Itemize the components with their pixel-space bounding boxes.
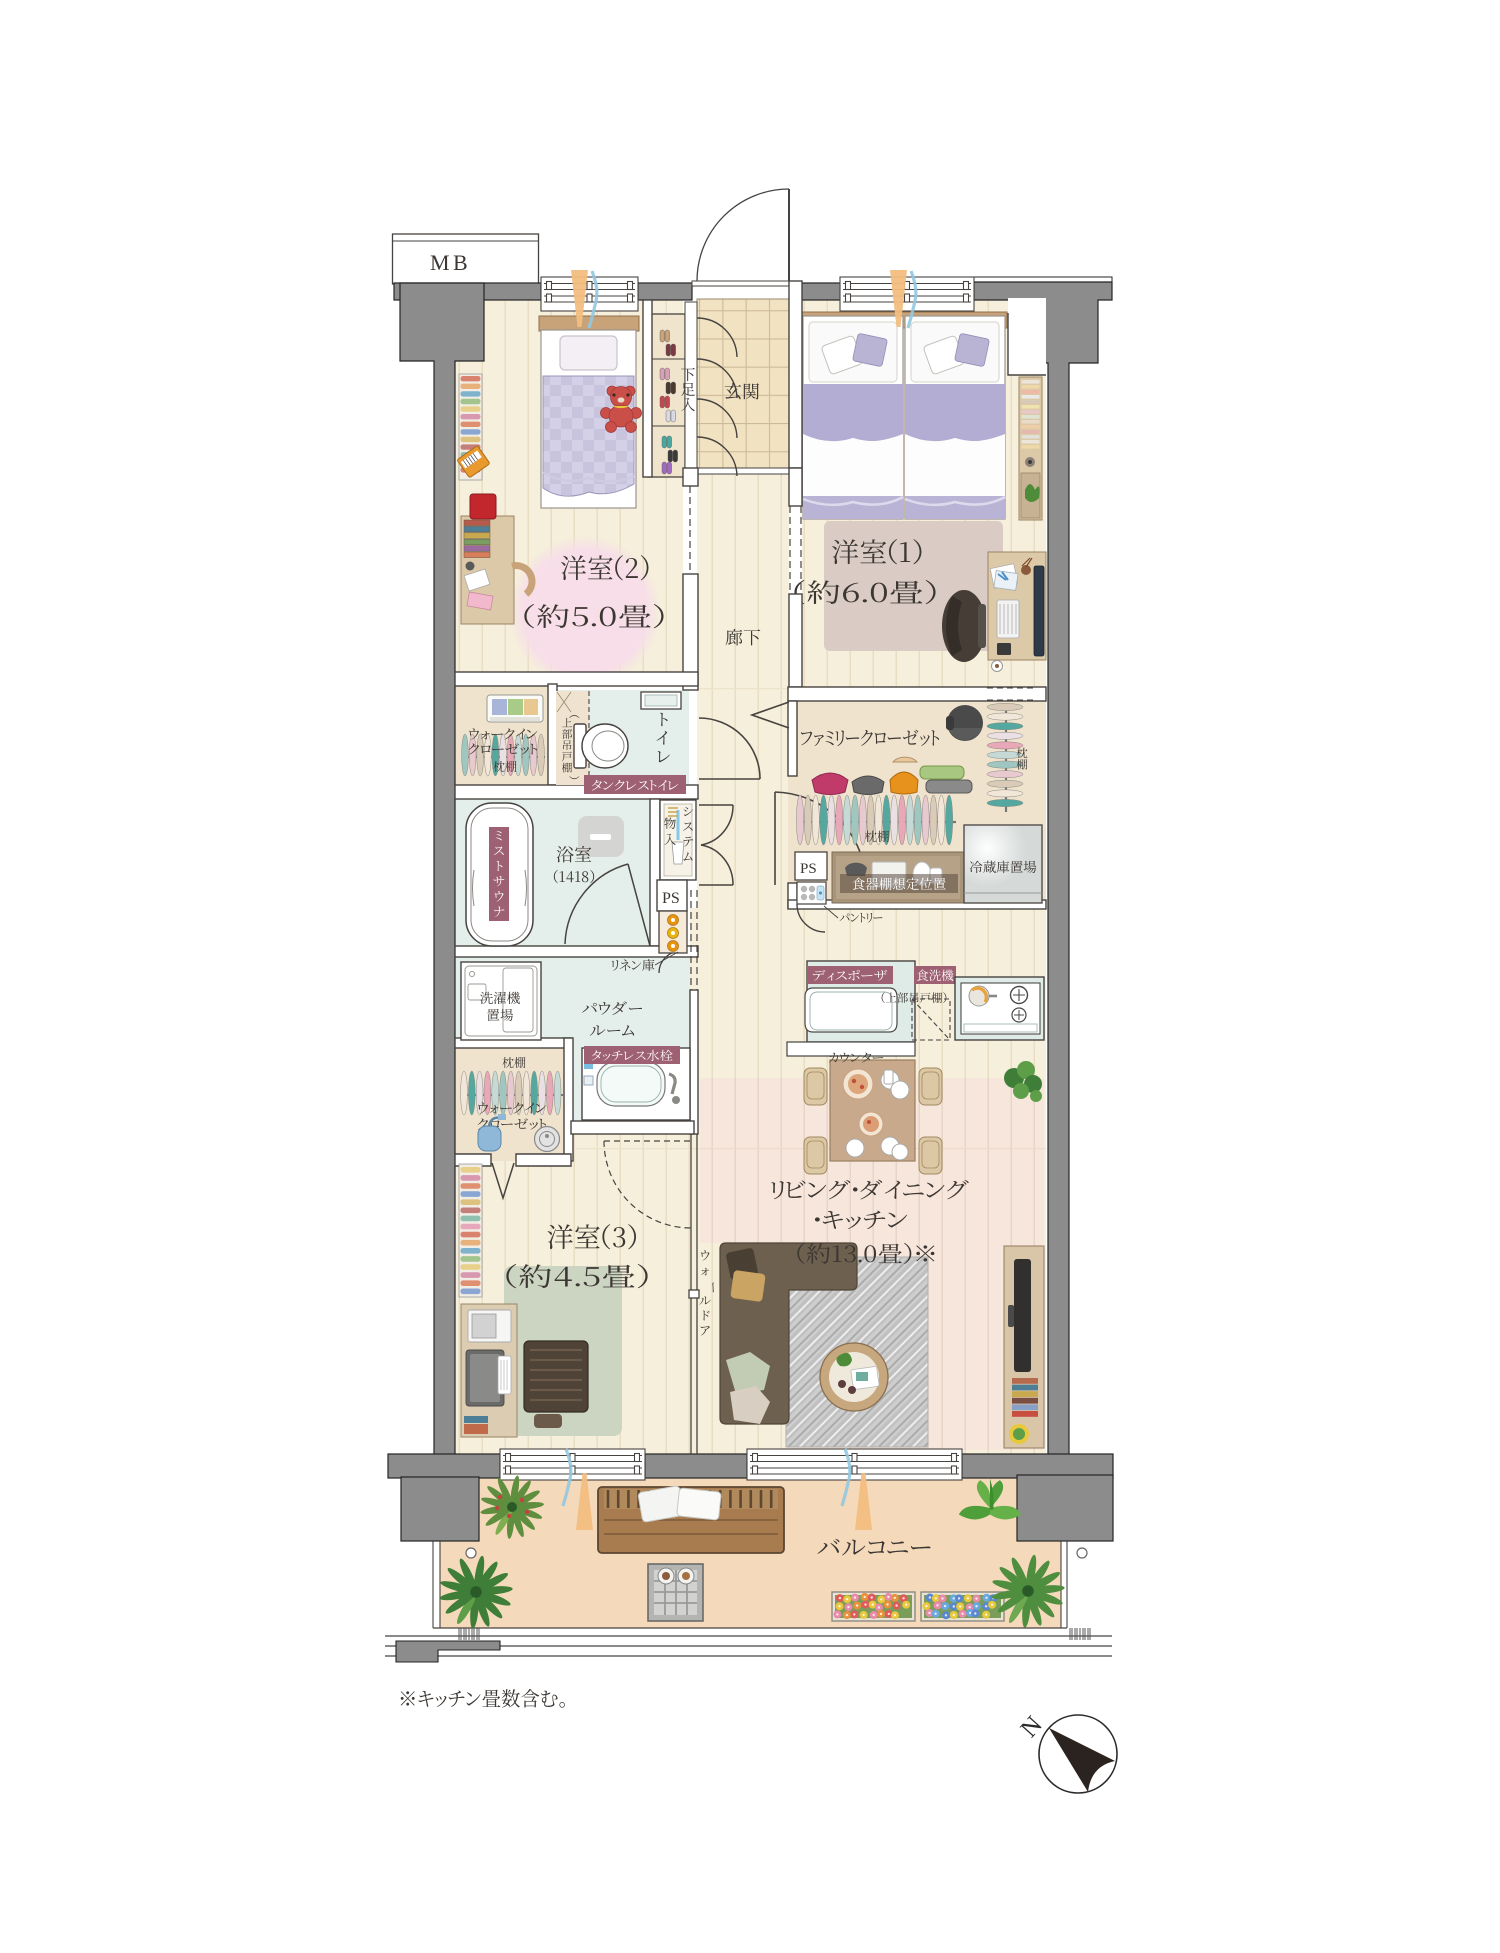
svg-text:PS: PS [662,890,680,907]
svg-text:MB: MB [430,250,471,275]
svg-text:PS: PS [800,861,817,877]
